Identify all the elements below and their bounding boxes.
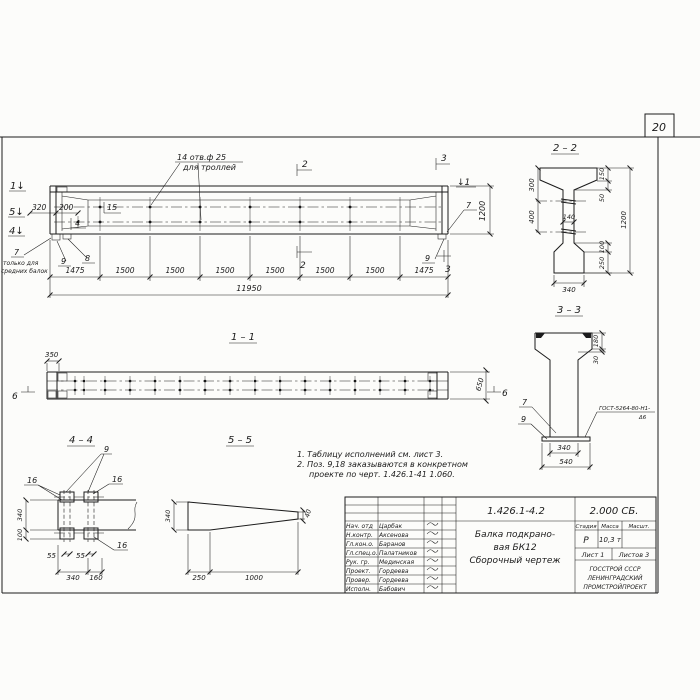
dim-label: 1500 [115, 266, 134, 275]
pos-label-15: 15 [107, 203, 117, 212]
role-label: Проект. [346, 568, 371, 575]
role-label: Н.контр. [346, 532, 373, 539]
section-mark-1: 1↓ [10, 181, 25, 192]
dim-label: 100 [16, 529, 24, 541]
person-name: Гордеева [379, 568, 409, 575]
dim-label: 30 [592, 356, 600, 364]
dim-label: 200 [59, 203, 74, 212]
section-3-3-view: 3 – 3 180 30 7 9 ГОСТ-5264-80-Н1- Δ6 340… [518, 305, 655, 470]
column-header-mass: Масса [601, 524, 619, 530]
dim-label: 320 [32, 203, 47, 212]
pos-label-7: 7 [14, 248, 20, 257]
dim-label: 340 [164, 510, 172, 522]
role-label: Гл.спец.о. [346, 550, 378, 557]
support-tab [52, 234, 60, 240]
role-label: Исполн. [346, 586, 371, 593]
dim-label: 180 [592, 335, 600, 347]
person-name: Баранов [379, 541, 406, 548]
organization: ГОССТРОЙ СССР [589, 566, 640, 573]
stage-value: Р [583, 536, 589, 546]
section-mark-2: 2 [302, 160, 308, 170]
doc-number: 1.426.1-4.2 [487, 506, 545, 517]
dim-label: 1500 [265, 266, 284, 275]
dim-label: 250 [192, 574, 206, 582]
role-label: Нач. отд [346, 523, 373, 530]
dim-label: 140 [563, 213, 575, 221]
mass-value: 10,3 т [599, 536, 622, 544]
bottom-plate [542, 437, 590, 441]
note-line: 1. Таблицу исполнений см. лист 3. [297, 450, 443, 459]
signature-squiggles [427, 523, 438, 589]
cut-flag-2 [297, 246, 312, 258]
section-mark-4: 4↓ [9, 226, 24, 237]
support-tab [438, 234, 446, 239]
drawing-sheet: 20 1475 1500 1500 1500 1500 1500 1500 14… [0, 0, 700, 700]
section-title: 4 – 4 [69, 435, 93, 446]
dim-label: 1475 [65, 266, 84, 275]
pos-label-16: 16 [27, 476, 37, 485]
dim-label: 340 [562, 286, 576, 294]
weld-gost-note: ГОСТ-5264-80-Н1- [599, 406, 650, 412]
section-mark-2: 2 [300, 261, 306, 271]
dim-label: 540 [559, 458, 573, 466]
dim-label: 250 [598, 257, 606, 269]
dim-label: 300 [528, 178, 536, 192]
pos-label-16: 16 [117, 541, 127, 550]
column-header-stage: Стадия [575, 524, 597, 530]
dim-label: 150 [598, 168, 606, 180]
person-name: Царбак [379, 523, 403, 530]
holes-note: для троллей [182, 163, 236, 172]
sheets-total: Листов 3 [618, 551, 649, 559]
pos-label-4: 4 [75, 219, 80, 228]
dim-label: 1200 [620, 211, 628, 229]
dim-label: 55 [76, 552, 85, 560]
section-title: 2 – 2 [553, 143, 577, 154]
dim-label: 1500 [165, 266, 184, 275]
doc-code: 2.000 СБ. [590, 506, 639, 517]
column-header-scale: Масшт. [628, 524, 649, 530]
section-mark-6: 6 [502, 389, 508, 399]
note-line: 2. Поз. 9,18 заказываются в конкретном [297, 460, 468, 469]
pos-label-9: 9 [61, 257, 66, 266]
note-line: проекте по черт. 1.426.1-41 1.060. [309, 470, 455, 479]
section-5-5-view: 5 – 5 40 340 250 1000 [164, 435, 313, 582]
note-middle-beams: средних балок [1, 268, 48, 275]
pos-label-7: 7 [522, 398, 528, 407]
pos-label-9: 9 [425, 254, 430, 263]
role-label: Провер. [346, 577, 371, 584]
pos-label-16: 16 [112, 475, 122, 484]
section-4-4-view: 4 – 4 9 16 16 16 340 100 55 55 340 160 [16, 435, 137, 582]
dim-label: 50 [598, 194, 606, 202]
dim-label: 400 [528, 210, 536, 224]
dim-label: 1200 [478, 201, 487, 221]
drawing-title: вая БК12 [493, 543, 536, 553]
dim-label: 160 [89, 574, 103, 582]
drawing-canvas: 20 1475 1500 1500 1500 1500 1500 1500 14… [0, 0, 700, 700]
sheet-count: Лист 1 [581, 551, 605, 559]
dim-label: 1000 [245, 574, 263, 582]
weld-gost-note: Δ6 [638, 415, 647, 421]
note-middle-beams: только для [3, 260, 39, 267]
role-label: Гл.кон.о. [346, 541, 374, 548]
person-name: Палатников [379, 550, 417, 557]
drawing-title: Сборочный чертеж [469, 556, 561, 566]
section-mark-3: 3 [441, 154, 447, 164]
person-name: Бабович [379, 586, 406, 593]
organization: ПРОМСТРОЙПРОЕКТ [583, 584, 648, 591]
dim-label: 40 [303, 508, 313, 518]
role-label: Рук. гр. [346, 559, 370, 566]
section-mark-1-right: ↓1 [457, 178, 470, 188]
dim-label: 350 [45, 351, 59, 359]
organization: ЛЕНИНГРАДСКИЙ [587, 575, 644, 582]
beam-end-cross-section [535, 333, 592, 437]
dim-label: 1500 [215, 266, 234, 275]
dim-label: 1475 [414, 266, 433, 275]
dim-label: 100 [598, 241, 606, 253]
section-mark-3: 3 [445, 265, 451, 275]
dim-label: 340 [16, 509, 24, 521]
person-name: Мединская [379, 559, 414, 566]
section-title: 5 – 5 [228, 435, 252, 446]
pos-label-9: 9 [521, 415, 526, 424]
dim-label: 340 [557, 444, 571, 452]
section-mark-5: 5↓ [9, 207, 24, 218]
support-tab [63, 234, 71, 239]
drawing-title: Балка подкрано- [475, 530, 555, 540]
main-elevation-view: 1475 1500 1500 1500 1500 1500 1500 1475 … [1, 153, 494, 298]
sheet-number: 20 [652, 121, 666, 134]
dim-label: 1500 [315, 266, 334, 275]
cut-flag-3 [437, 250, 451, 262]
pos-label-7: 7 [466, 201, 472, 210]
dim-label: 650 [474, 376, 485, 392]
section-title: 1 – 1 [231, 332, 255, 343]
dim-label-total: 11950 [236, 284, 261, 293]
pos-label-9: 9 [104, 445, 109, 454]
section-title: 3 – 3 [557, 305, 581, 316]
section-2-2-view: 2 – 2 300 400 150 50 140 1200 100 250 34… [528, 143, 634, 294]
tapered-plate [188, 502, 298, 530]
pos-label-8: 8 [85, 254, 90, 263]
person-name: Аксенова [378, 532, 409, 539]
dim-label: 55 [47, 552, 56, 560]
holes-note: 14 отв.ф 25 [177, 153, 226, 162]
dim-label: 1500 [365, 266, 384, 275]
dim-label: 340 [66, 574, 80, 582]
section-mark-6: 6 [12, 392, 18, 402]
title-block: 1.426.1-4.2 2.000 СБ. Балка подкрано- ва… [345, 497, 656, 593]
person-name: Гордеева [379, 577, 409, 584]
general-notes: 1. Таблицу исполнений см. лист 3. 2. Поз… [297, 450, 468, 479]
top-plate-detail [57, 187, 67, 192]
section-1-1-view: 1 – 1 350 6 6 650 [12, 332, 508, 402]
